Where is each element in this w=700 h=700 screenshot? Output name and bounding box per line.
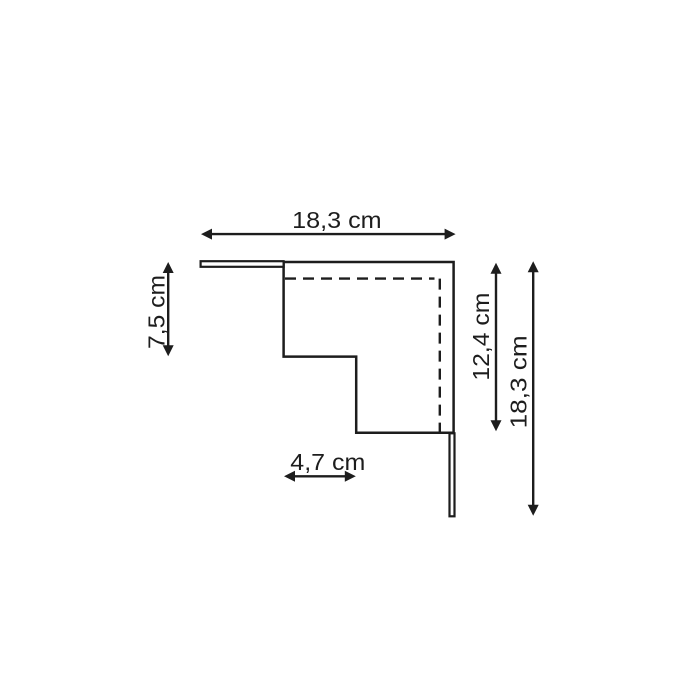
svg-text:4,7 cm: 4,7 cm [290, 449, 365, 475]
svg-text:18,3 cm: 18,3 cm [292, 207, 382, 233]
svg-text:7,5 cm: 7,5 cm [143, 275, 169, 349]
svg-text:18,3 cm: 18,3 cm [506, 335, 532, 428]
svg-text:12,4 cm: 12,4 cm [468, 293, 494, 381]
